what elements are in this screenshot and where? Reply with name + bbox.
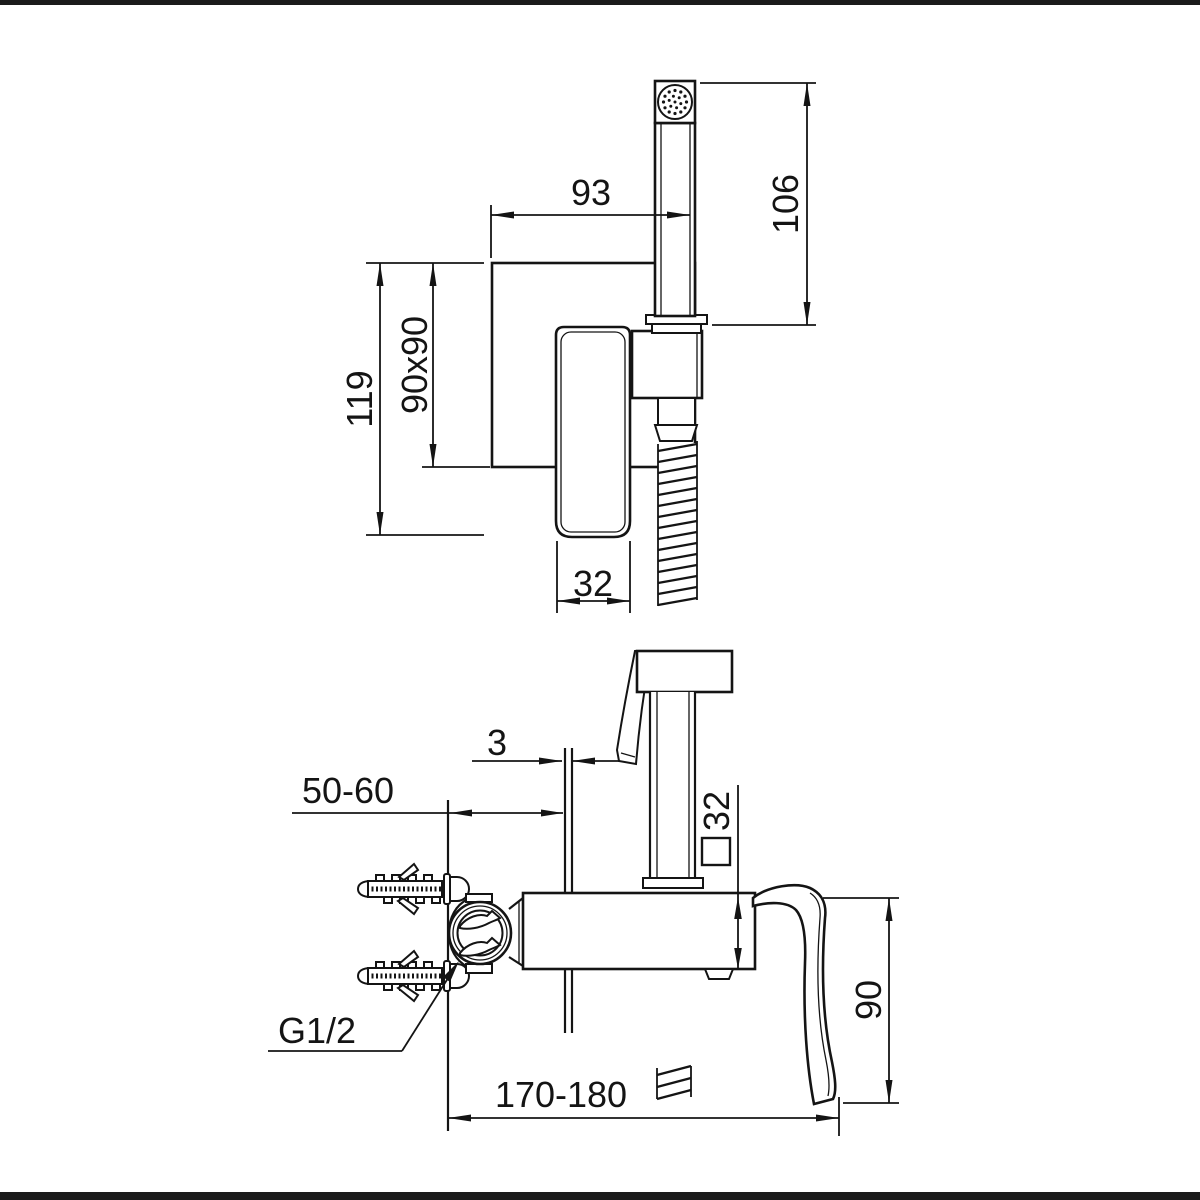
dim-170-180-label: 170-180 bbox=[495, 1074, 627, 1115]
square-section-symbol bbox=[702, 838, 730, 865]
front-view: 93 106 119 90x90 32 bbox=[339, 81, 816, 613]
hose-nut bbox=[655, 425, 697, 441]
dim-93-label: 93 bbox=[571, 172, 611, 213]
dim-170-180: 170-180 bbox=[448, 1074, 839, 1136]
technical-drawing-canvas: 93 106 119 90x90 32 bbox=[0, 0, 1200, 1200]
water-inlet-connection bbox=[449, 894, 523, 973]
dim-119-label: 119 bbox=[339, 370, 380, 427]
hand-shower-head-side bbox=[637, 651, 732, 692]
dim-90-side-label: 90 bbox=[848, 980, 889, 1020]
dim-square-32-label: 32 bbox=[696, 791, 737, 831]
drawing-svg: 93 106 119 90x90 32 bbox=[0, 0, 1200, 1200]
inlet-bottom-tab bbox=[466, 964, 492, 973]
dim-90x90: 90x90 bbox=[394, 263, 490, 467]
top-border-line bbox=[0, 0, 1200, 5]
body-underside-detail bbox=[705, 969, 733, 979]
dim-32-front-label: 32 bbox=[573, 563, 613, 604]
dim-50-60-label: 50-60 bbox=[302, 770, 394, 811]
shower-hose bbox=[658, 441, 697, 606]
hose-coil-symbol bbox=[657, 1066, 691, 1099]
dim-50-60: 50-60 bbox=[292, 770, 563, 817]
dim-32-front: 32 bbox=[557, 541, 630, 613]
mixer-body-side bbox=[523, 893, 755, 969]
hand-shower-flange-2 bbox=[652, 324, 701, 333]
holder-column-side bbox=[650, 692, 695, 878]
bottom-border-line bbox=[0, 1192, 1200, 1200]
side-view: 3 50-60 32 90 G1/2 bbox=[268, 651, 899, 1136]
dim-g12-label: G1/2 bbox=[278, 1010, 356, 1051]
shower-holder-front bbox=[632, 331, 702, 398]
dim-90x90-label: 90x90 bbox=[394, 316, 435, 414]
mixer-lever-front bbox=[556, 327, 630, 537]
dim-106-label: 106 bbox=[765, 174, 806, 234]
hose-connector bbox=[658, 398, 695, 425]
dim-3-label: 3 bbox=[487, 722, 507, 763]
mixer-lever-side bbox=[753, 885, 835, 1104]
holder-base-flange bbox=[643, 878, 703, 888]
dim-106: 106 bbox=[700, 83, 816, 325]
dim-3: 3 bbox=[472, 722, 620, 763]
wall-anchor bbox=[358, 864, 469, 914]
